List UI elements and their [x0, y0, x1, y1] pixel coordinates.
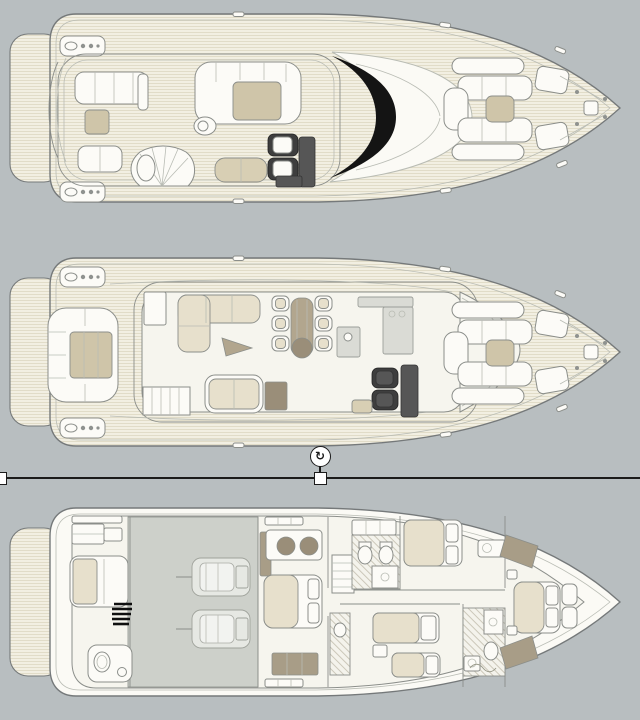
pillow	[426, 656, 438, 674]
aft-bench	[78, 146, 122, 172]
gate-platform-port	[60, 36, 105, 56]
pillow	[446, 524, 458, 542]
shower	[372, 566, 398, 588]
pillow	[308, 579, 319, 599]
shower	[484, 610, 503, 634]
sunpad	[215, 158, 267, 182]
companionway	[332, 555, 354, 593]
u-sofa-table	[233, 82, 281, 120]
spiral-staircase	[131, 146, 195, 186]
companionway-stairs	[143, 387, 190, 415]
bidet	[379, 546, 393, 564]
coffee-table	[85, 110, 109, 134]
engine-room	[128, 517, 258, 687]
master-berth	[264, 575, 322, 628]
resize-handle-center[interactable]	[314, 472, 327, 485]
aft-sofa	[75, 72, 148, 110]
rotate-icon: ↻	[315, 449, 325, 463]
tv-cabinet	[265, 382, 287, 410]
washbasin	[464, 656, 480, 671]
resize-handle-left[interactable]	[0, 472, 7, 485]
guest-cabin-double	[404, 520, 462, 566]
main-deck-plan	[0, 250, 640, 454]
round-stool	[194, 117, 216, 135]
pillow	[446, 546, 458, 564]
sink	[344, 333, 352, 341]
aft-cockpit	[48, 308, 118, 402]
wardrobe	[272, 653, 318, 675]
dining-area	[272, 296, 332, 358]
seat	[562, 607, 577, 628]
toilet	[484, 642, 498, 660]
flybridge-deck-plan	[0, 6, 640, 210]
ensuite-floor	[330, 613, 350, 675]
toilet	[94, 652, 110, 672]
pillow	[546, 608, 558, 627]
aft-cabinet	[144, 292, 166, 325]
u-sofa	[195, 62, 301, 124]
gate-platform-starboard	[60, 182, 105, 202]
cockpit-table	[70, 332, 112, 378]
canvas: ↻	[0, 0, 640, 720]
nightstand	[507, 626, 517, 635]
crew-wc	[88, 645, 132, 682]
nightstand	[507, 570, 517, 579]
day-head	[463, 608, 505, 676]
gate-platform-port	[60, 267, 105, 287]
rotate-handle[interactable]: ↻	[310, 446, 331, 467]
nightstand	[373, 645, 387, 657]
lower-deck-plan[interactable]	[0, 500, 640, 704]
sink	[277, 537, 295, 555]
seat	[562, 584, 577, 605]
crew-berth	[70, 556, 128, 607]
sink	[118, 668, 127, 677]
pillow	[546, 586, 558, 605]
toilet	[334, 623, 346, 637]
gate-platform-starboard	[60, 418, 105, 438]
pillow	[308, 603, 319, 623]
toilet	[358, 546, 372, 564]
vip-berth	[514, 582, 560, 633]
sink	[300, 537, 318, 555]
pillow	[421, 616, 436, 640]
lounge-sofa	[205, 375, 263, 413]
helm-console	[401, 365, 418, 417]
